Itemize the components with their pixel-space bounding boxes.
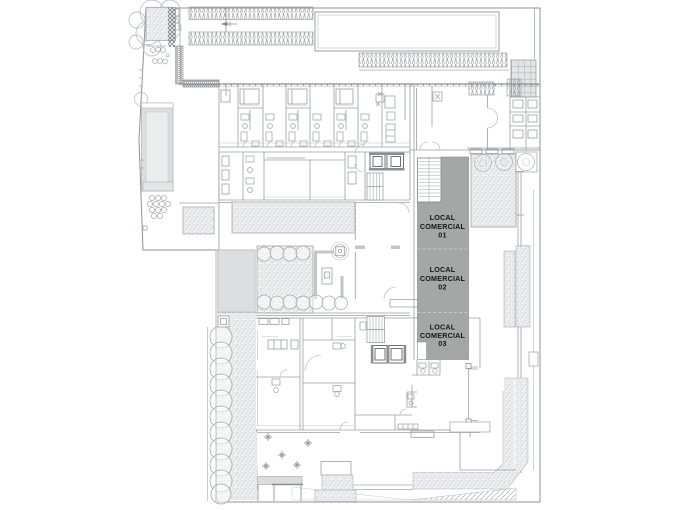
svg-text:LOCAL: LOCAL — [430, 213, 456, 222]
svg-text:01: 01 — [438, 231, 446, 240]
svg-text:03: 03 — [438, 339, 446, 348]
svg-text:02: 02 — [438, 283, 446, 292]
svg-text:LOCAL: LOCAL — [430, 265, 456, 274]
